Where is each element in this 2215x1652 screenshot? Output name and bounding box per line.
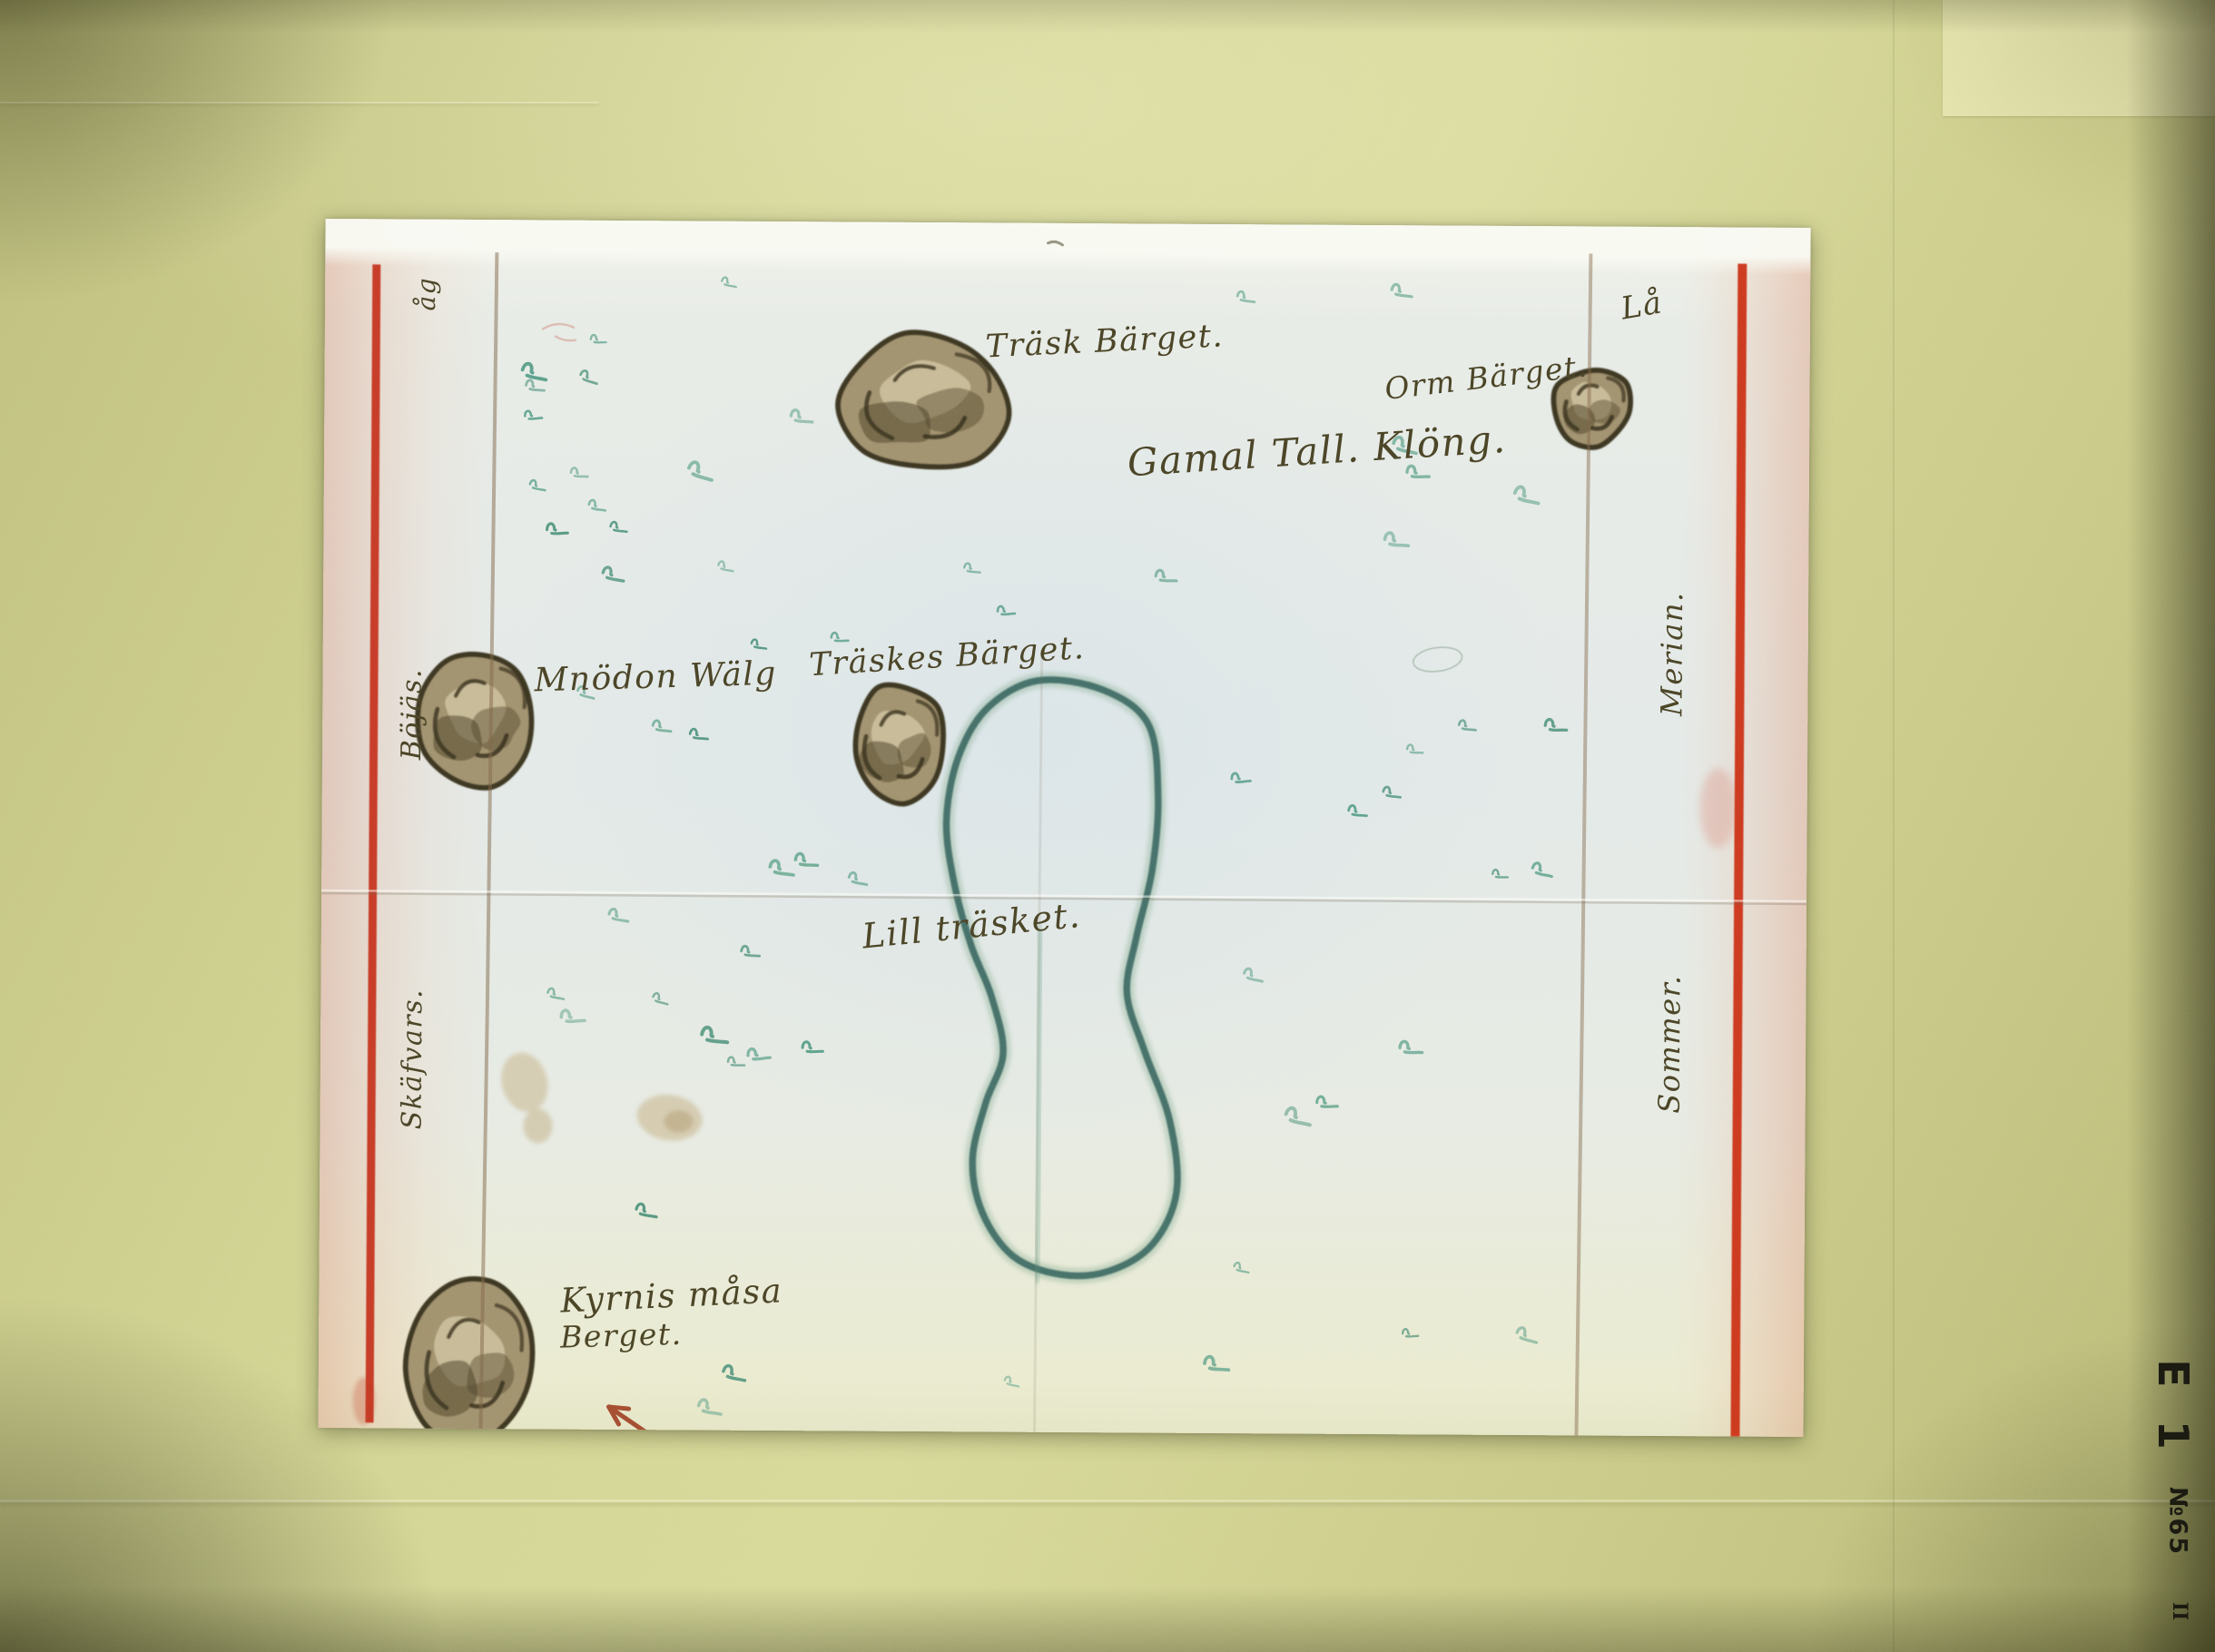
archive-stamp-suffix: II (2170, 1602, 2190, 1621)
map-sheet: Träsk Bärget. Gamal Tall. Klöng. Orm Bär… (318, 219, 1810, 1437)
label-kyrnis-berget: Berget. (560, 1319, 683, 1352)
backing-seam-top-left (0, 102, 599, 103)
lake-lill-trasket (943, 679, 1180, 1276)
label-kyrnis-masa: Kyrnis måsa (560, 1273, 783, 1317)
label-margin-skafvars: Skäfvars. (399, 988, 428, 1130)
label-mnodon-walg: Mnödon Wälg (534, 658, 777, 698)
archive-stamp-series: E 1 (2152, 1359, 2194, 1458)
backing-patch-top-right (1943, 0, 2215, 116)
label-margin-bojas: Böjäs. (399, 668, 427, 760)
rock-hills (405, 329, 1630, 1437)
label-corner-top-right: Lå (1619, 287, 1665, 324)
label-margin-merian: Merian. (1657, 591, 1687, 716)
backing-crease-horizontal (0, 1500, 2215, 1502)
label-margin-sommer: Sommer. (1655, 974, 1685, 1113)
archive-stamp-number: №65 (2166, 1487, 2190, 1556)
label-corner-top-left: åg (414, 277, 439, 311)
map-artwork (318, 219, 1810, 1437)
backing-crease-vertical (1893, 0, 1895, 1652)
photo: Träsk Bärget. Gamal Tall. Klöng. Orm Bär… (0, 0, 2215, 1652)
